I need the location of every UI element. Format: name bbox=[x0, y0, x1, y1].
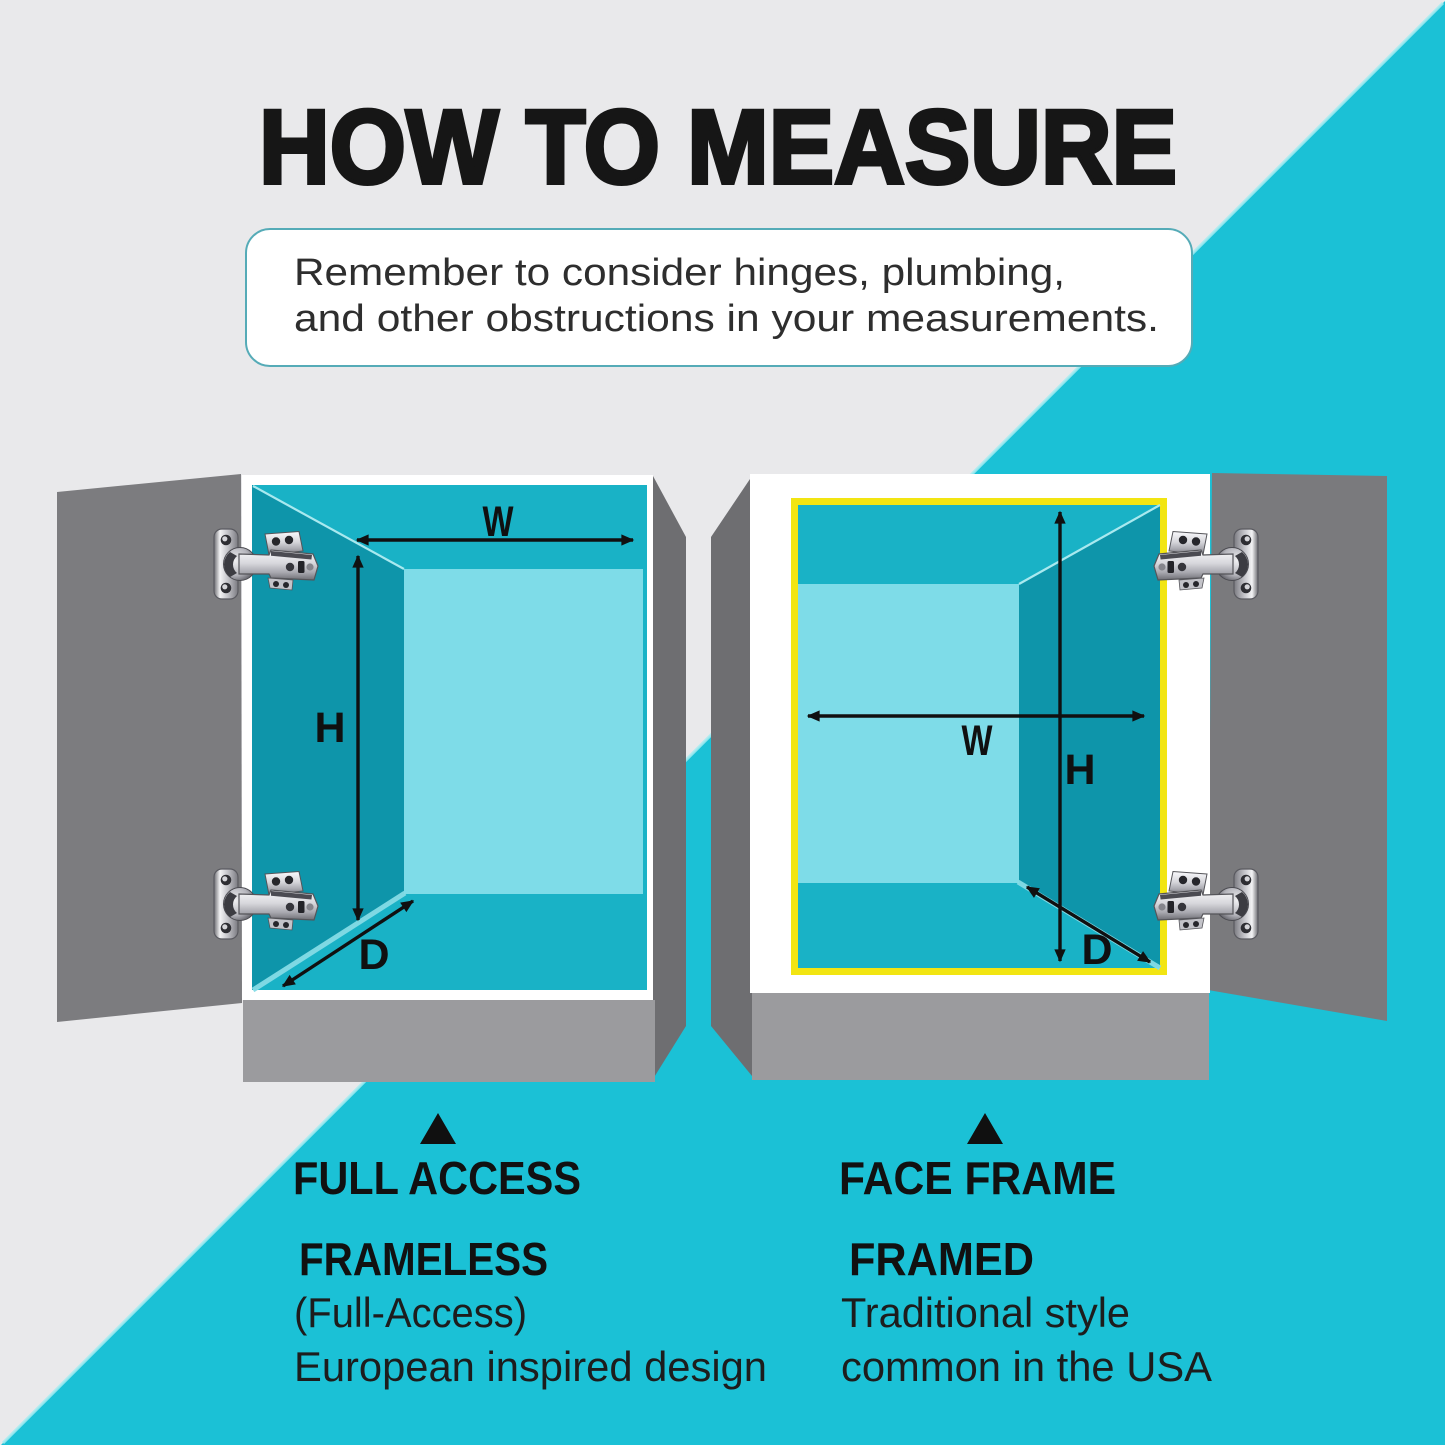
svg-text:FACE FRAME: FACE FRAME bbox=[839, 1152, 1116, 1204]
svg-text:(Full-Access): (Full-Access) bbox=[294, 1289, 527, 1336]
svg-text:common in the USA: common in the USA bbox=[841, 1343, 1212, 1390]
svg-text:Traditional style: Traditional style bbox=[841, 1289, 1130, 1336]
svg-text:FRAMED: FRAMED bbox=[849, 1233, 1034, 1285]
svg-text:European inspired design: European inspired design bbox=[294, 1343, 767, 1390]
svg-text:W: W bbox=[962, 717, 993, 765]
svg-text:H: H bbox=[1064, 746, 1095, 794]
svg-text:and other obstructions in your: and other obstructions in your measureme… bbox=[294, 298, 1159, 340]
svg-text:D: D bbox=[358, 931, 389, 979]
svg-text:D: D bbox=[1081, 926, 1112, 974]
svg-text:FULL ACCESS: FULL ACCESS bbox=[293, 1152, 581, 1204]
svg-text:HOW TO MEASURE: HOW TO MEASURE bbox=[259, 89, 1177, 206]
svg-text:Remember to consider hinges, p: Remember to consider hinges, plumbing, bbox=[294, 252, 1065, 294]
svg-text:W: W bbox=[483, 498, 514, 546]
svg-text:H: H bbox=[314, 704, 345, 752]
svg-text:FRAMELESS: FRAMELESS bbox=[299, 1233, 548, 1285]
